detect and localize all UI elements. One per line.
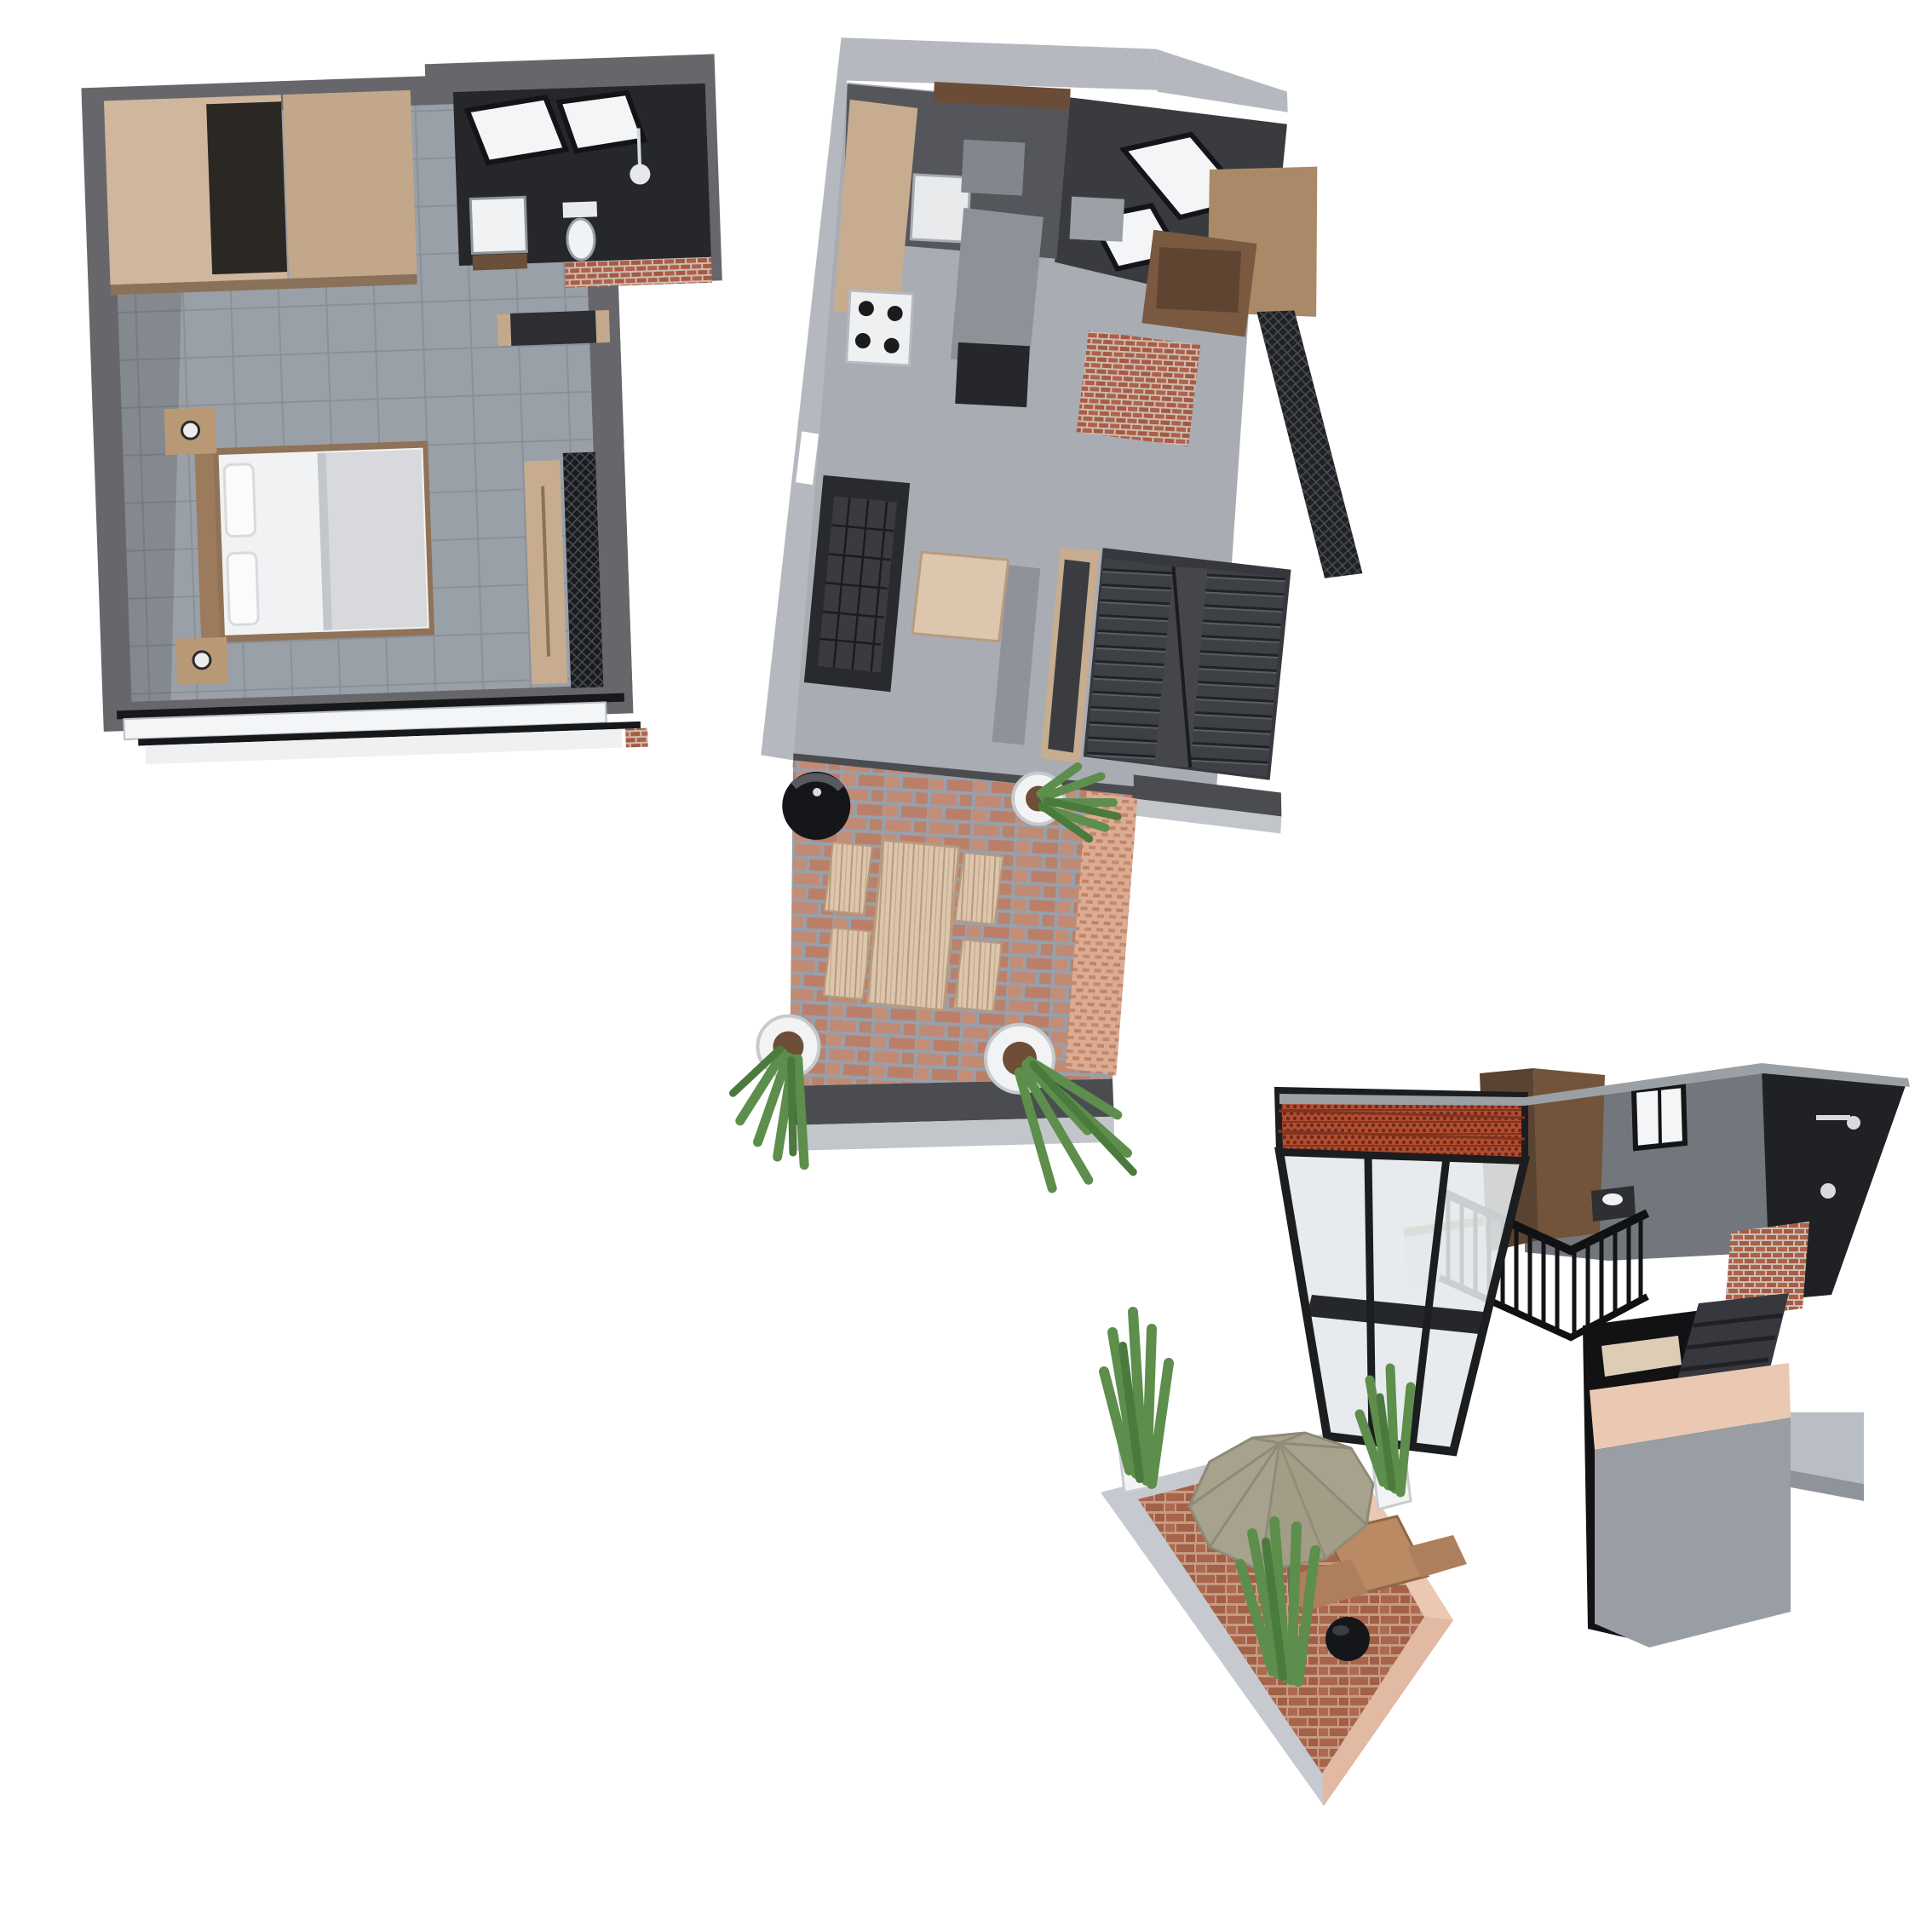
main-floor-plan-render: [729, 30, 1389, 1203]
cactus-left: [738, 1051, 810, 1165]
wall-counter: [1070, 197, 1125, 242]
fridge: [911, 175, 970, 242]
tv-console: [497, 310, 610, 347]
gray-box-counter: [961, 140, 1025, 196]
iso-shower-valve-icon: [1820, 1183, 1836, 1199]
outdoor-chair-4: [954, 940, 1002, 1012]
iso-shower-head-icon: [1847, 1116, 1860, 1130]
bathroom-skylight-2: [559, 92, 644, 151]
bathroom-skylight-1: [467, 97, 566, 164]
lamp-bottom-icon: [193, 652, 211, 670]
top-outer-wall-step: [1153, 49, 1291, 112]
isometric-view-render: [1101, 1063, 1910, 1806]
outdoor-dining-table: [867, 840, 959, 1011]
toilet-tank: [562, 201, 597, 217]
upper-floor-plan-render: [81, 54, 739, 765]
coffee-table: [912, 552, 1009, 642]
cooktop: [847, 290, 913, 365]
toilet: [566, 218, 595, 260]
floorplan-canvas: [0, 0, 1932, 1932]
brick-counter: [1076, 330, 1201, 446]
bed-duvet: [318, 450, 428, 630]
wardrobe-open-bay: [206, 101, 287, 274]
wardrobe-right: [283, 90, 417, 279]
floorplan-renders: [0, 0, 1932, 1932]
iso-enclosure-front: [1595, 1417, 1791, 1647]
shower-stem: [638, 129, 640, 166]
iso-vanity-sink: [1602, 1193, 1623, 1205]
lamp-top-icon: [181, 422, 199, 440]
terrace-grill: [1325, 1617, 1370, 1661]
wood-desk-inner: [1156, 247, 1241, 313]
bathroom-brick-threshold: [565, 257, 712, 288]
washbasin: [470, 197, 526, 253]
glazing-brick-nub: [625, 728, 648, 748]
tv-console-end-left: [497, 313, 511, 347]
outdoor-chair-3: [955, 853, 1003, 925]
tv-console-end-right: [595, 310, 610, 343]
outdoor-chair-2: [824, 928, 871, 1000]
mesh-balustrade-diagonal-texture: [1243, 308, 1376, 580]
washbasin-cabinet: [473, 253, 528, 270]
iso-window-mullion: [1659, 1088, 1660, 1146]
outdoor-chair-1: [825, 842, 872, 915]
pillow-2: [227, 553, 259, 625]
island-appliance: [955, 342, 1030, 407]
terrace-grill-highlight: [1332, 1625, 1349, 1636]
pillow-1: [224, 464, 256, 537]
